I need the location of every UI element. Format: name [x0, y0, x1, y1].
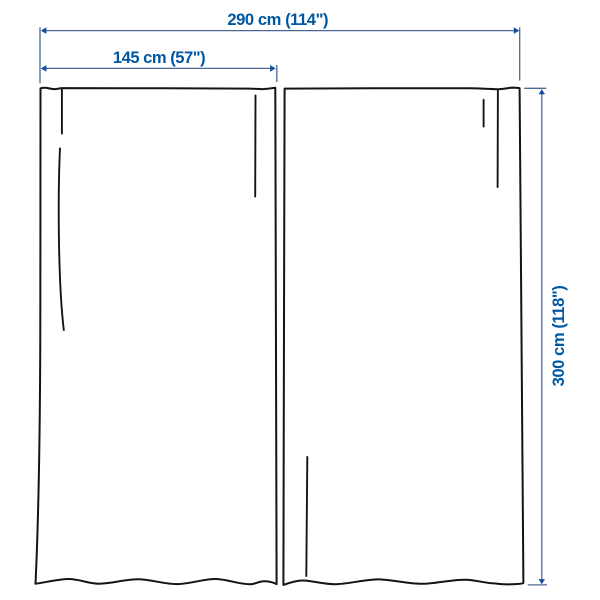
svg-text:145 cm (57"): 145 cm (57")	[113, 48, 205, 67]
svg-text:290 cm (114"): 290 cm (114")	[227, 10, 328, 29]
svg-text:300 cm (118"): 300 cm (118")	[549, 286, 568, 387]
